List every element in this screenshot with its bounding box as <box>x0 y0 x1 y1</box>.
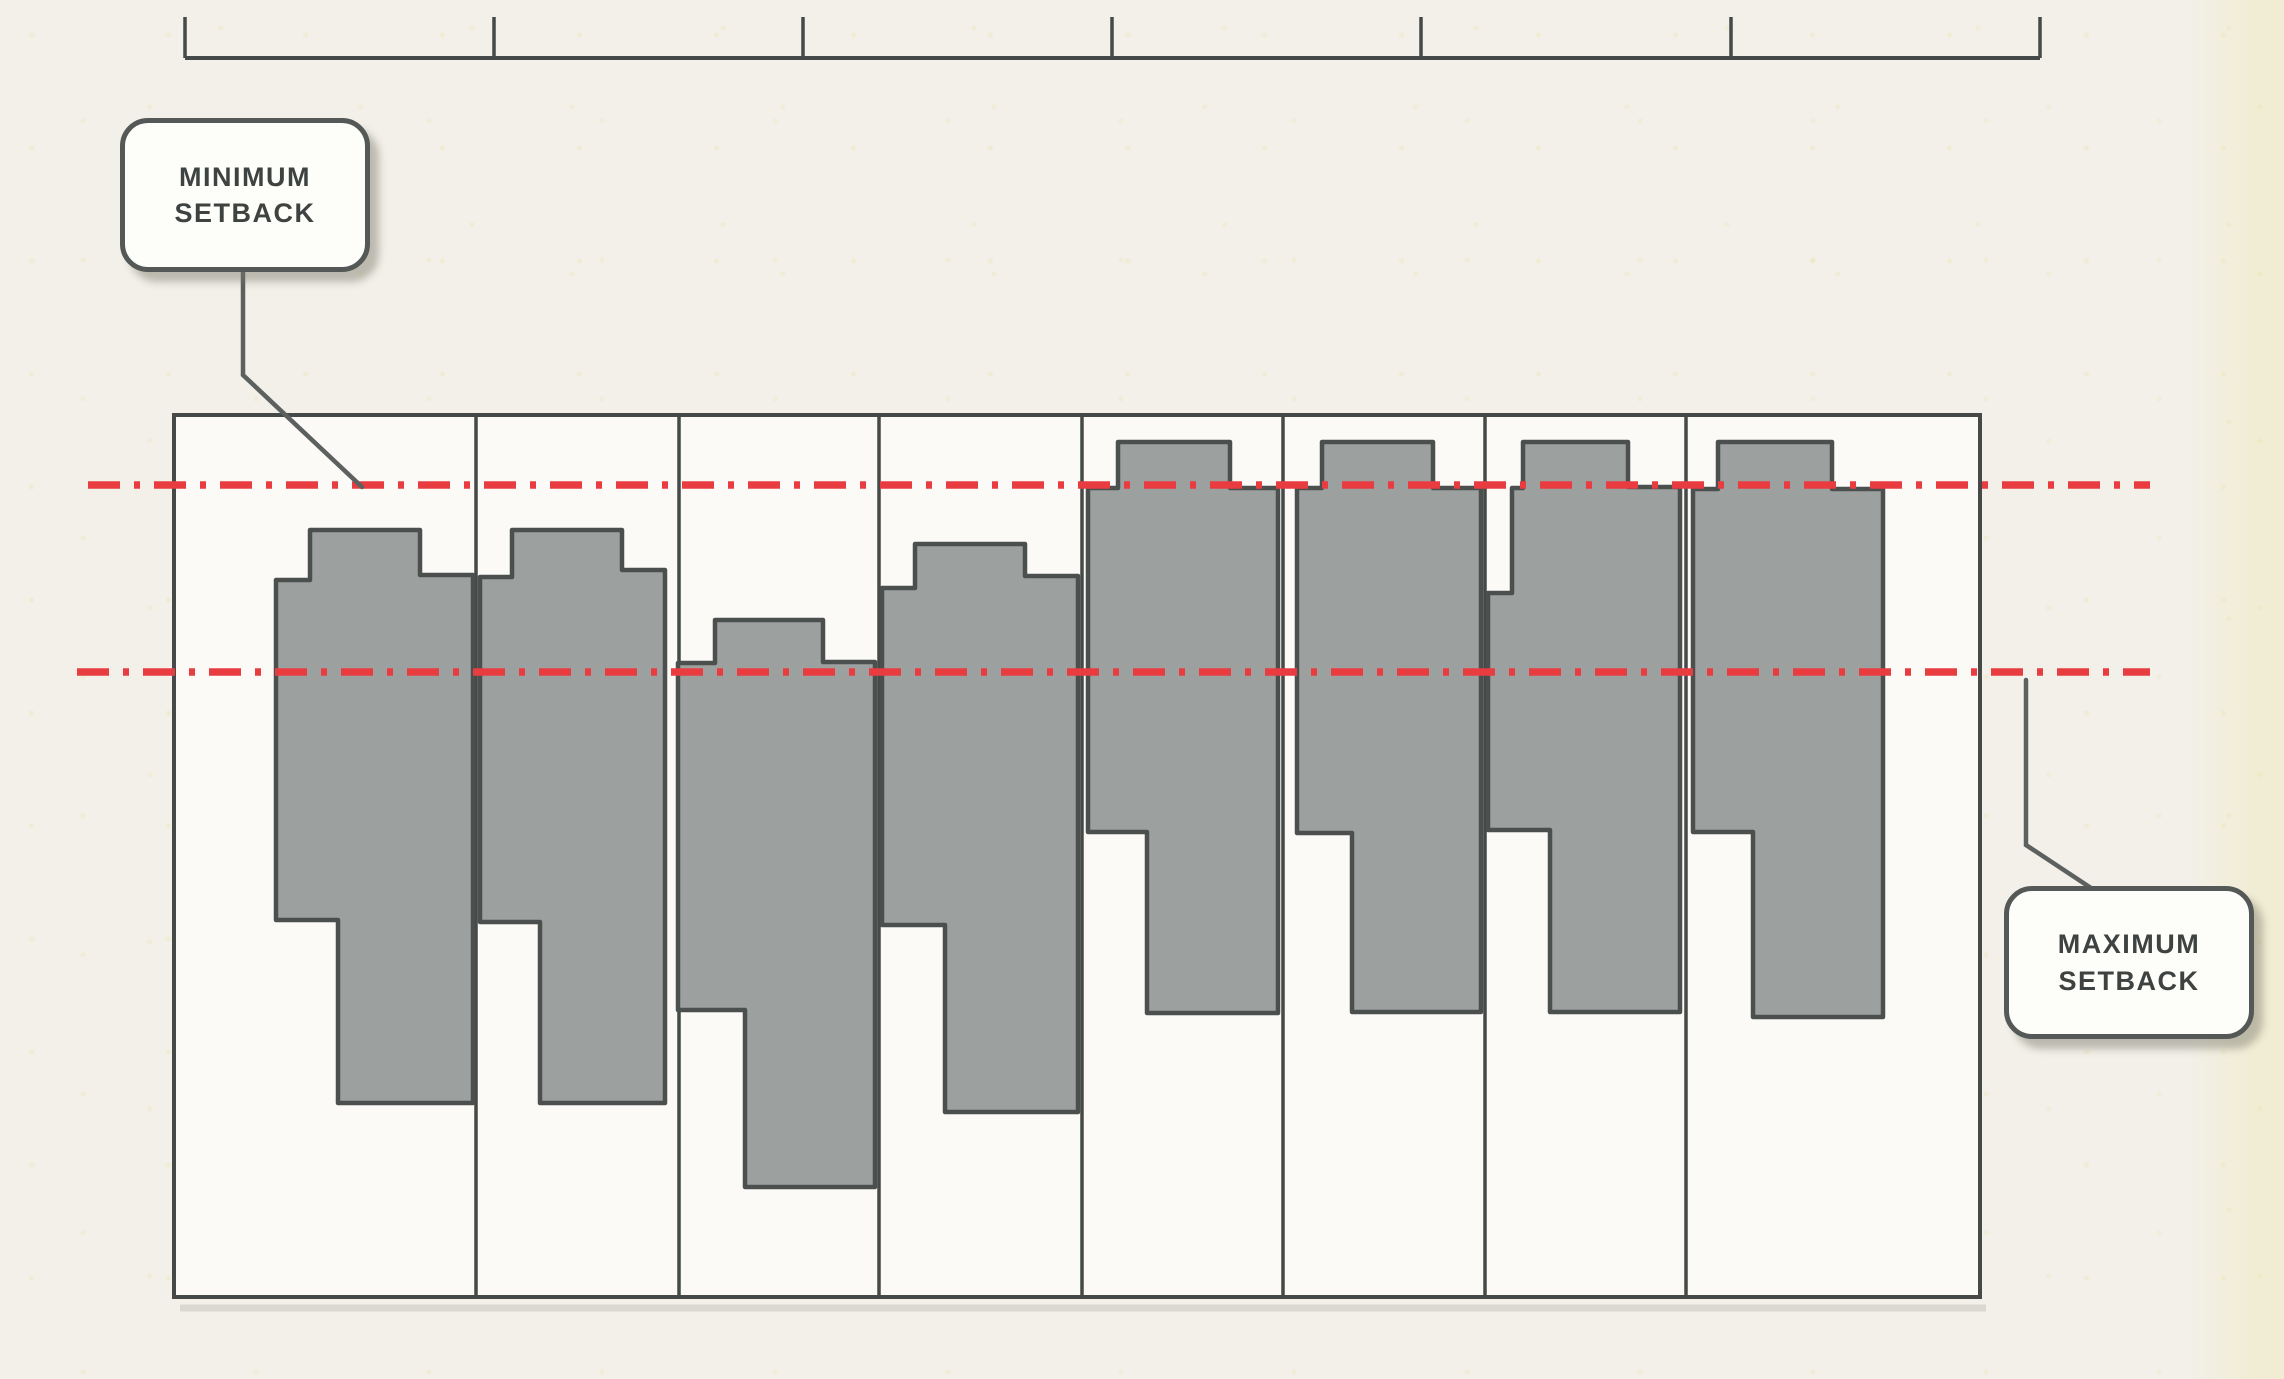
maximum-setback-callout: MAXIMUM SETBACK <box>2004 886 2254 1039</box>
scanned-page: MINIMUM SETBACK MAXIMUM SETBACK <box>0 0 2284 1379</box>
leader-maximum <box>2026 680 2091 888</box>
minimum-setback-label-line2: SETBACK <box>174 195 315 231</box>
maximum-setback-label-line2: SETBACK <box>2058 963 2199 999</box>
maximum-setback-label-line1: MAXIMUM <box>2058 926 2200 962</box>
minimum-setback-callout: MINIMUM SETBACK <box>120 118 370 272</box>
minimum-setback-label-line1: MINIMUM <box>179 159 311 195</box>
